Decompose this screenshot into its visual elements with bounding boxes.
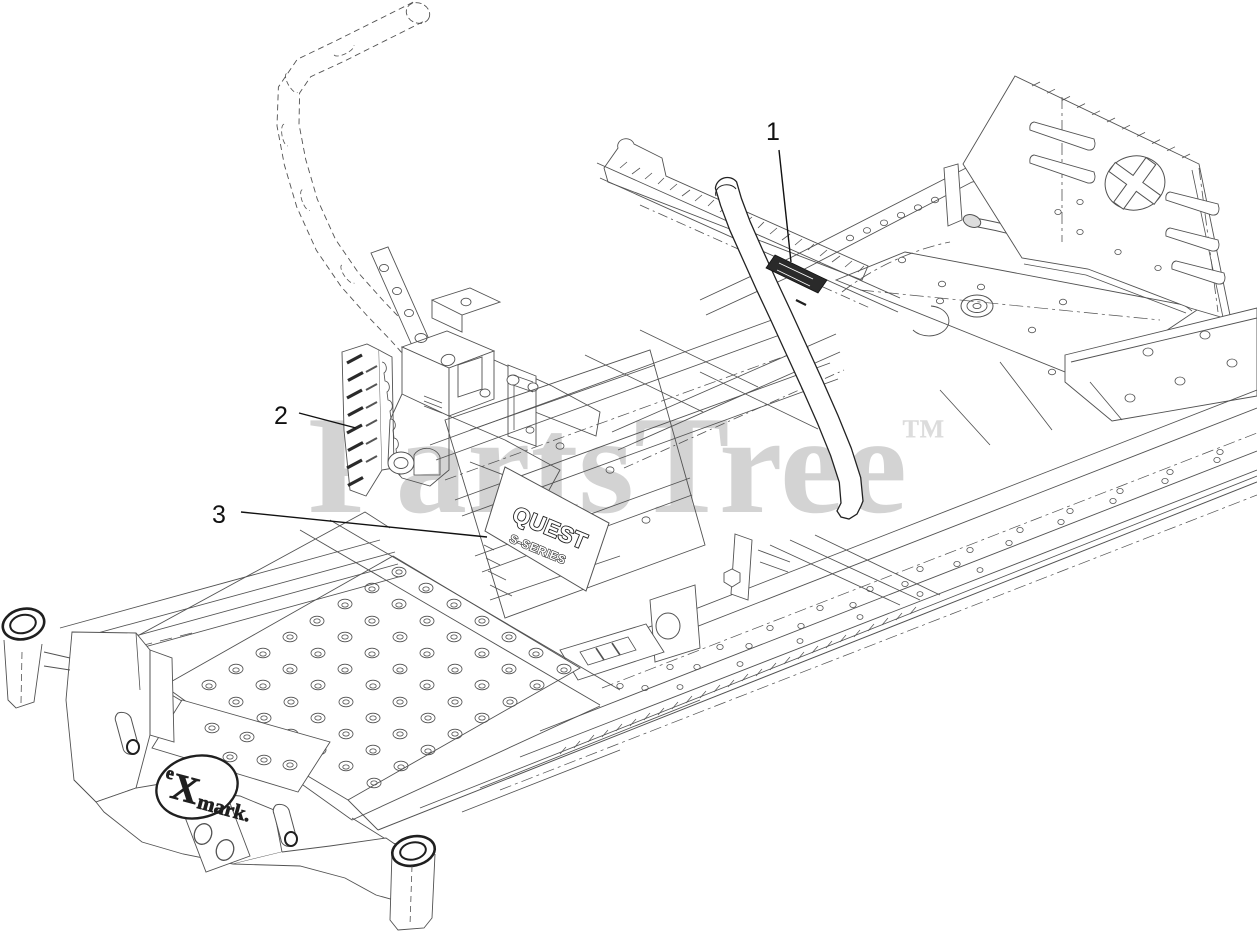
svg-text:3: 3 xyxy=(212,501,226,529)
svg-text:™: ™ xyxy=(901,410,945,459)
svg-text:1: 1 xyxy=(766,118,780,146)
svg-text:2: 2 xyxy=(274,402,288,430)
